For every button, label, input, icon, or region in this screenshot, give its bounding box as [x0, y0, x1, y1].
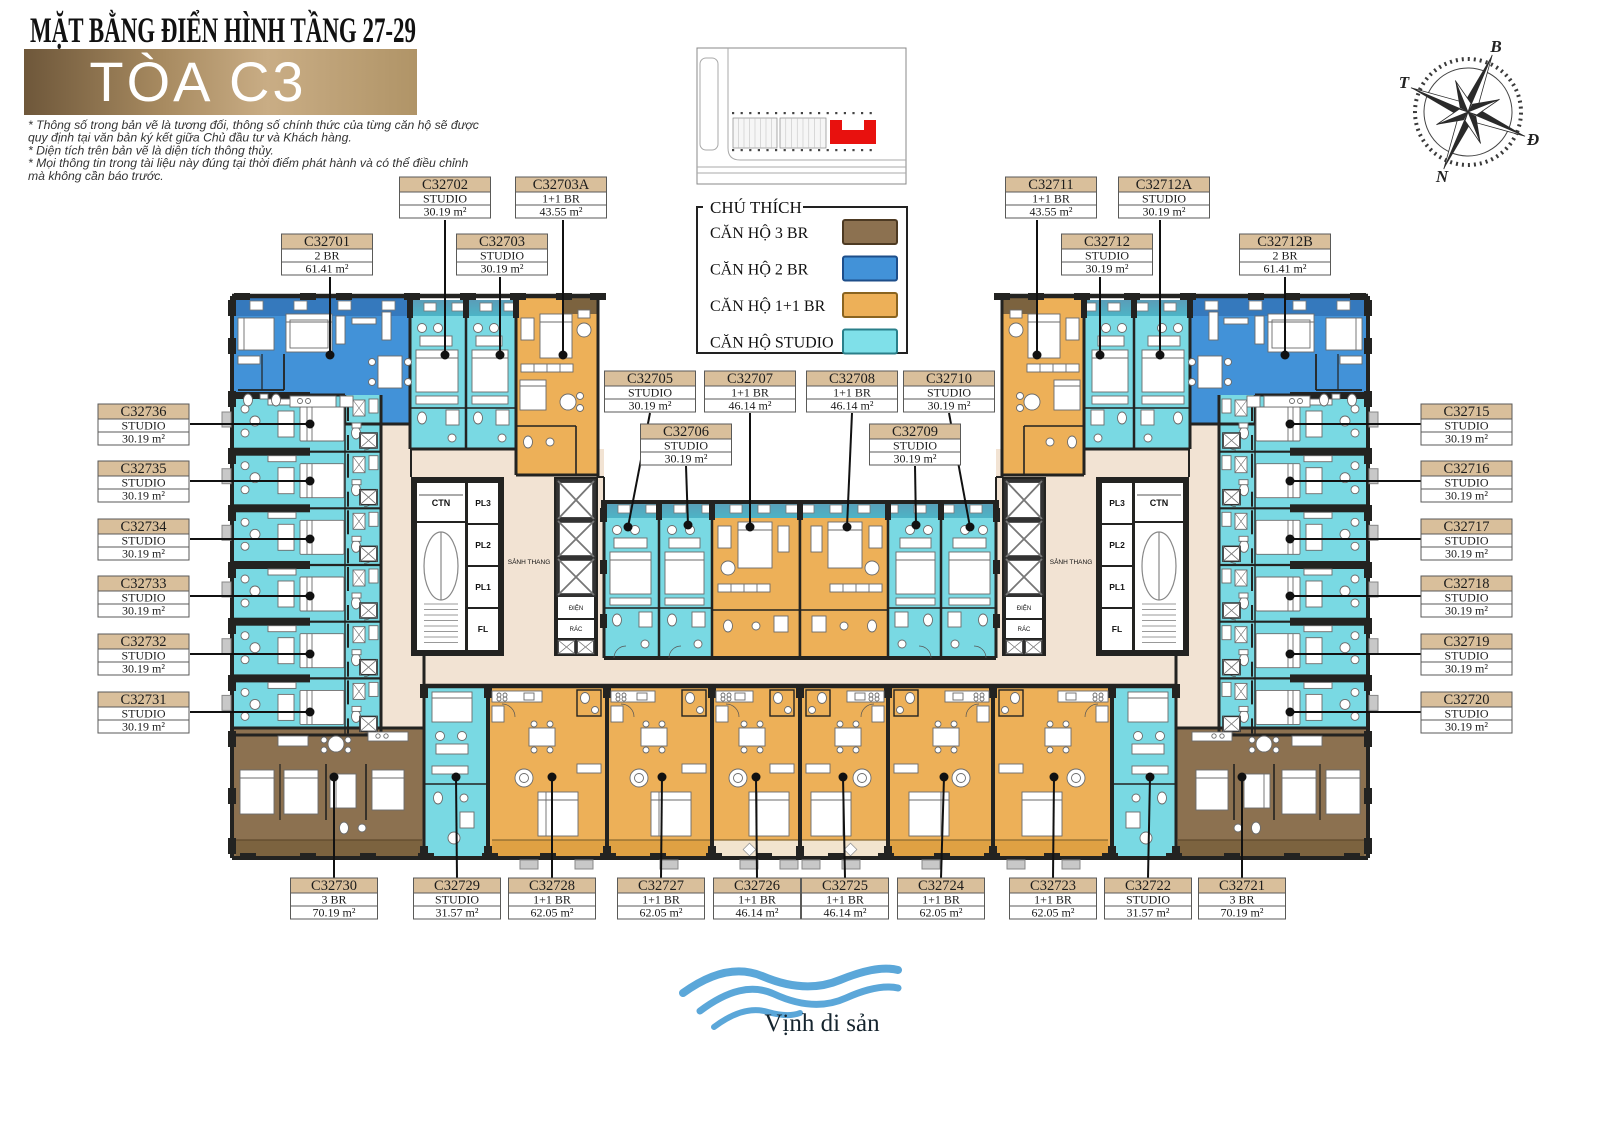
svg-text:46.14 m²: 46.14 m²	[824, 906, 867, 920]
svg-text:STUDIO: STUDIO	[1445, 591, 1489, 605]
svg-text:1+1 BR: 1+1 BR	[738, 893, 776, 907]
svg-text:46.14 m²: 46.14 m²	[831, 399, 874, 413]
svg-text:30.19 m²: 30.19 m²	[1143, 205, 1186, 219]
svg-text:30.19 m²: 30.19 m²	[1445, 489, 1488, 503]
svg-text:1+1 BR: 1+1 BR	[533, 893, 571, 907]
svg-text:30.19 m²: 30.19 m²	[665, 452, 708, 466]
svg-text:1+1 BR: 1+1 BR	[1034, 893, 1072, 907]
svg-text:STUDIO: STUDIO	[1445, 534, 1489, 548]
svg-text:T: T	[1399, 73, 1410, 92]
svg-text:STUDIO: STUDIO	[1445, 419, 1489, 433]
svg-text:ĐIỆN: ĐIỆN	[569, 604, 583, 612]
svg-text:70.19 m²: 70.19 m²	[1221, 906, 1264, 920]
svg-text:43.55 m²: 43.55 m²	[1030, 205, 1073, 219]
svg-text:STUDIO: STUDIO	[423, 192, 467, 206]
svg-text:46.14 m²: 46.14 m²	[729, 399, 772, 413]
svg-text:STUDIO: STUDIO	[122, 707, 166, 721]
svg-text:CTN: CTN	[1150, 498, 1169, 508]
svg-text:STUDIO: STUDIO	[480, 249, 524, 263]
svg-text:STUDIO: STUDIO	[435, 893, 479, 907]
svg-text:1+1 BR: 1+1 BR	[542, 192, 580, 206]
svg-text:PL3: PL3	[475, 498, 491, 508]
svg-text:62.05 m²: 62.05 m²	[640, 906, 683, 920]
svg-text:STUDIO: STUDIO	[1445, 649, 1489, 663]
svg-text:PL2: PL2	[1109, 540, 1125, 550]
svg-text:70.19 m²: 70.19 m²	[313, 906, 356, 920]
svg-text:Vịnh di sản: Vịnh di sản	[764, 1010, 880, 1037]
svg-text:CĂN HỘ 1+1 BR: CĂN HỘ 1+1 BR	[710, 296, 826, 315]
svg-text:PL2: PL2	[475, 540, 491, 550]
svg-text:61.41 m²: 61.41 m²	[1264, 262, 1307, 276]
svg-text:62.05 m²: 62.05 m²	[531, 906, 574, 920]
svg-text:62.05 m²: 62.05 m²	[1032, 906, 1075, 920]
svg-text:PL3: PL3	[1109, 498, 1125, 508]
svg-text:30.19 m²: 30.19 m²	[1445, 547, 1488, 561]
svg-text:1+1 BR: 1+1 BR	[642, 893, 680, 907]
svg-text:30.19 m²: 30.19 m²	[122, 432, 165, 446]
svg-text:STUDIO: STUDIO	[664, 439, 708, 453]
svg-text:SẢNH THANG: SẢNH THANG	[508, 557, 551, 566]
svg-text:31.57 m²: 31.57 m²	[436, 906, 479, 920]
svg-text:CHÚ THÍCH: CHÚ THÍCH	[710, 198, 802, 217]
svg-text:PL1: PL1	[1109, 582, 1125, 592]
svg-text:30.19 m²: 30.19 m²	[122, 604, 165, 618]
svg-text:STUDIO: STUDIO	[122, 419, 166, 433]
svg-text:STUDIO: STUDIO	[122, 534, 166, 548]
svg-text:ĐIỆN: ĐIỆN	[1017, 604, 1031, 612]
svg-text:2 BR: 2 BR	[314, 249, 339, 263]
svg-text:B: B	[1489, 37, 1501, 56]
svg-text:CĂN HỘ 3 BR: CĂN HỘ 3 BR	[710, 223, 809, 242]
svg-text:30.19 m²: 30.19 m²	[122, 662, 165, 676]
svg-text:Đ: Đ	[1526, 130, 1539, 149]
svg-text:30.19 m²: 30.19 m²	[1086, 262, 1129, 276]
svg-text:46.14 m²: 46.14 m²	[736, 906, 779, 920]
svg-text:mà không cần báo trước.: mà không cần báo trước.	[28, 169, 164, 183]
svg-text:1+1 BR: 1+1 BR	[826, 893, 864, 907]
svg-text:30.19 m²: 30.19 m²	[481, 262, 524, 276]
svg-text:PL1: PL1	[475, 582, 491, 592]
svg-text:3 BR: 3 BR	[1229, 893, 1254, 907]
svg-text:MẶT BẰNG ĐIỂN HÌNH TẦNG 27-29: MẶT BẰNG ĐIỂN HÌNH TẦNG 27-29	[30, 10, 416, 50]
svg-text:1+1 BR: 1+1 BR	[922, 893, 960, 907]
svg-text:STUDIO: STUDIO	[628, 386, 672, 400]
svg-text:30.19 m²: 30.19 m²	[1445, 604, 1488, 618]
svg-text:STUDIO: STUDIO	[1445, 707, 1489, 721]
svg-text:30.19 m²: 30.19 m²	[928, 399, 971, 413]
svg-text:1+1 BR: 1+1 BR	[833, 386, 871, 400]
svg-text:STUDIO: STUDIO	[893, 439, 937, 453]
svg-text:30.19 m²: 30.19 m²	[1445, 720, 1488, 734]
svg-text:STUDIO: STUDIO	[122, 591, 166, 605]
svg-text:CTN: CTN	[432, 498, 451, 508]
svg-text:31.57 m²: 31.57 m²	[1127, 906, 1170, 920]
svg-text:61.41 m²: 61.41 m²	[306, 262, 349, 276]
svg-text:TÒA C3: TÒA C3	[89, 50, 306, 113]
svg-text:62.05 m²: 62.05 m²	[920, 906, 963, 920]
svg-text:30.19 m²: 30.19 m²	[894, 452, 937, 466]
svg-text:30.19 m²: 30.19 m²	[1445, 432, 1488, 446]
svg-text:30.19 m²: 30.19 m²	[629, 399, 672, 413]
svg-text:30.19 m²: 30.19 m²	[1445, 662, 1488, 676]
svg-text:3 BR: 3 BR	[321, 893, 346, 907]
svg-text:STUDIO: STUDIO	[1085, 249, 1129, 263]
svg-text:30.19 m²: 30.19 m²	[122, 547, 165, 561]
svg-text:STUDIO: STUDIO	[122, 649, 166, 663]
svg-text:CĂN HỘ STUDIO: CĂN HỘ STUDIO	[710, 333, 834, 352]
svg-text:STUDIO: STUDIO	[927, 386, 971, 400]
svg-text:1+1 BR: 1+1 BR	[731, 386, 769, 400]
svg-text:STUDIO: STUDIO	[1445, 476, 1489, 490]
svg-text:N: N	[1435, 167, 1449, 186]
svg-text:SẢNH THANG: SẢNH THANG	[1050, 557, 1093, 566]
svg-text:CĂN HỘ 2 BR: CĂN HỘ 2 BR	[710, 260, 809, 279]
svg-text:STUDIO: STUDIO	[1142, 192, 1186, 206]
svg-text:FL: FL	[478, 624, 488, 634]
svg-text:30.19 m²: 30.19 m²	[122, 489, 165, 503]
svg-text:30.19 m²: 30.19 m²	[122, 720, 165, 734]
svg-text:STUDIO: STUDIO	[122, 476, 166, 490]
svg-text:1+1 BR: 1+1 BR	[1032, 192, 1070, 206]
svg-text:STUDIO: STUDIO	[1126, 893, 1170, 907]
svg-text:30.19 m²: 30.19 m²	[424, 205, 467, 219]
svg-text:43.55 m²: 43.55 m²	[540, 205, 583, 219]
svg-text:RÁC: RÁC	[570, 626, 583, 633]
svg-text:RÁC: RÁC	[1018, 626, 1031, 633]
svg-text:FL: FL	[1112, 624, 1122, 634]
svg-text:2 BR: 2 BR	[1272, 249, 1297, 263]
